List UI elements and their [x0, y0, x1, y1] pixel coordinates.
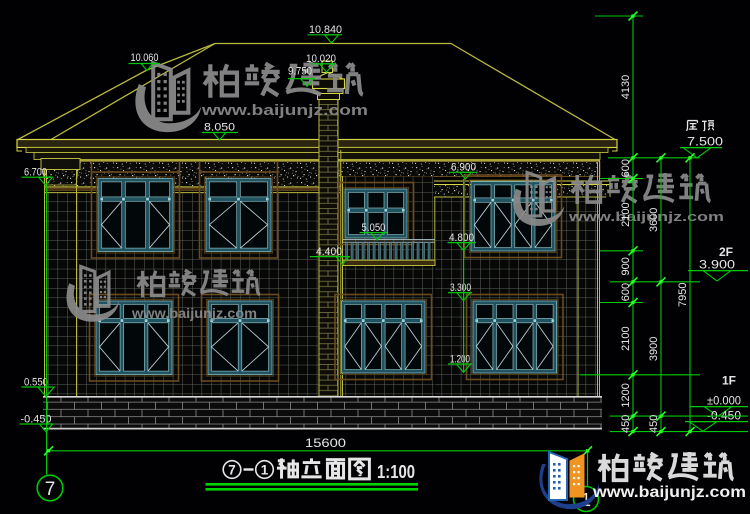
svg-text:7950: 7950 [677, 282, 689, 306]
svg-text:2F: 2F [719, 245, 733, 259]
svg-text:1: 1 [261, 463, 269, 478]
svg-text:±0.000: ±0.000 [707, 396, 741, 408]
svg-text:4130: 4130 [620, 75, 632, 99]
svg-text:450: 450 [620, 415, 632, 433]
svg-text:www.baijunjz.com: www.baijunjz.com [592, 484, 746, 501]
svg-text:1F: 1F [722, 374, 736, 388]
svg-text:8.050: 8.050 [204, 122, 235, 134]
svg-text:3.900: 3.900 [699, 260, 735, 272]
svg-text:www.baijunjz.com: www.baijunjz.com [568, 209, 724, 224]
svg-text:3600: 3600 [648, 208, 660, 232]
svg-text:900: 900 [620, 257, 632, 275]
svg-text:9.750: 9.750 [288, 66, 312, 78]
svg-text:2100: 2100 [620, 326, 632, 350]
svg-text:7: 7 [228, 463, 236, 478]
svg-text:7.500: 7.500 [687, 137, 723, 149]
svg-text:600: 600 [620, 159, 632, 177]
svg-text:3900: 3900 [648, 337, 660, 361]
svg-text:2100: 2100 [620, 202, 632, 226]
svg-text:450: 450 [648, 415, 660, 433]
svg-text:10.060: 10.060 [131, 52, 159, 64]
svg-text:www.baijunjz.com: www.baijunjz.com [131, 306, 257, 321]
svg-text:1200: 1200 [620, 383, 632, 407]
svg-text:www.baijunjz.com: www.baijunjz.com [201, 103, 368, 119]
svg-text:7: 7 [45, 479, 56, 500]
svg-text:1:100: 1:100 [377, 461, 415, 482]
svg-text:600: 600 [620, 283, 632, 301]
svg-text:15600: 15600 [305, 438, 346, 450]
